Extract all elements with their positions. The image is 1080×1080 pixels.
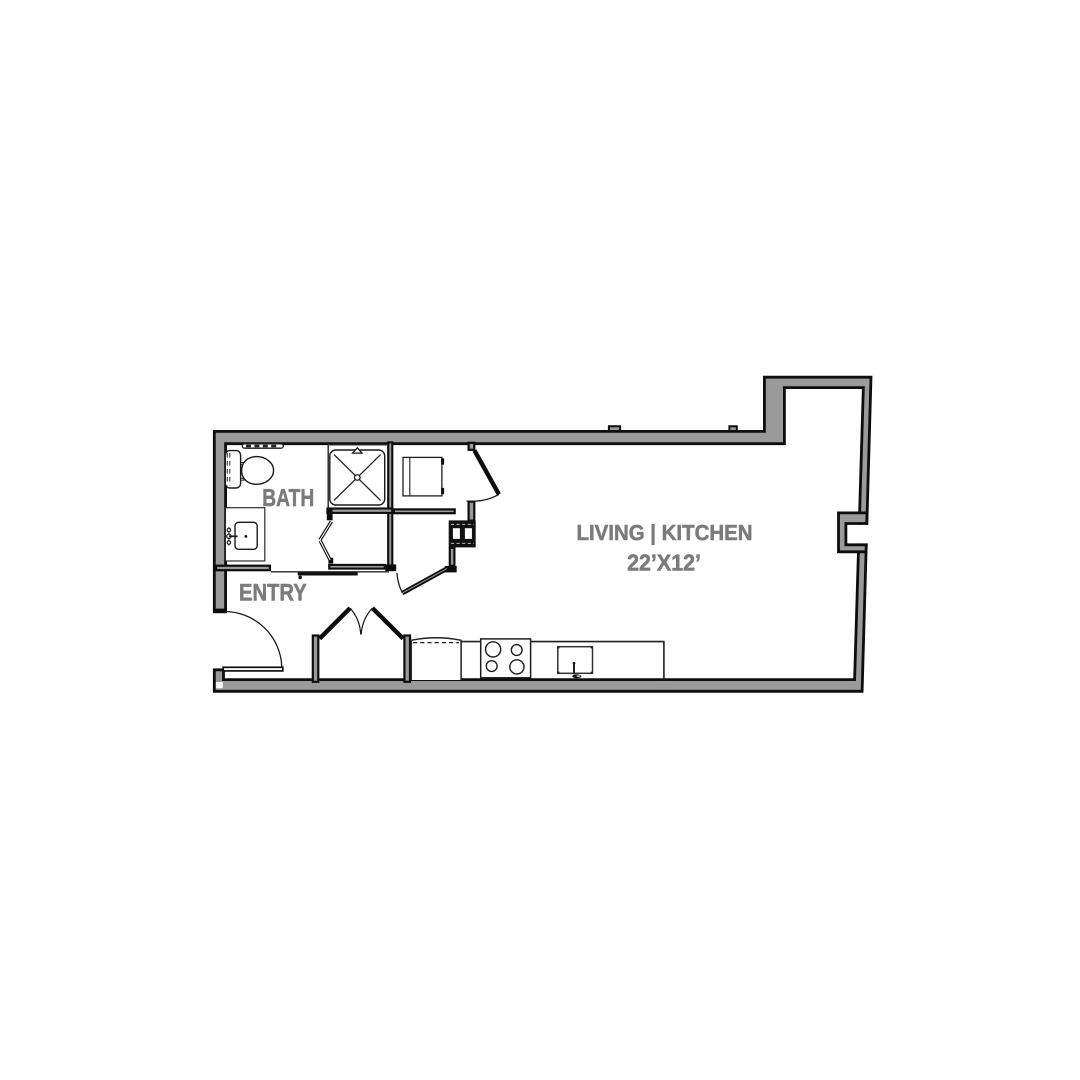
svg-text:ENTRY: ENTRY: [239, 580, 307, 607]
svg-text:BATH: BATH: [262, 485, 314, 512]
svg-text:22’X12’: 22’X12’: [627, 549, 701, 575]
svg-text:LIVING | KITCHEN: LIVING | KITCHEN: [577, 520, 753, 545]
